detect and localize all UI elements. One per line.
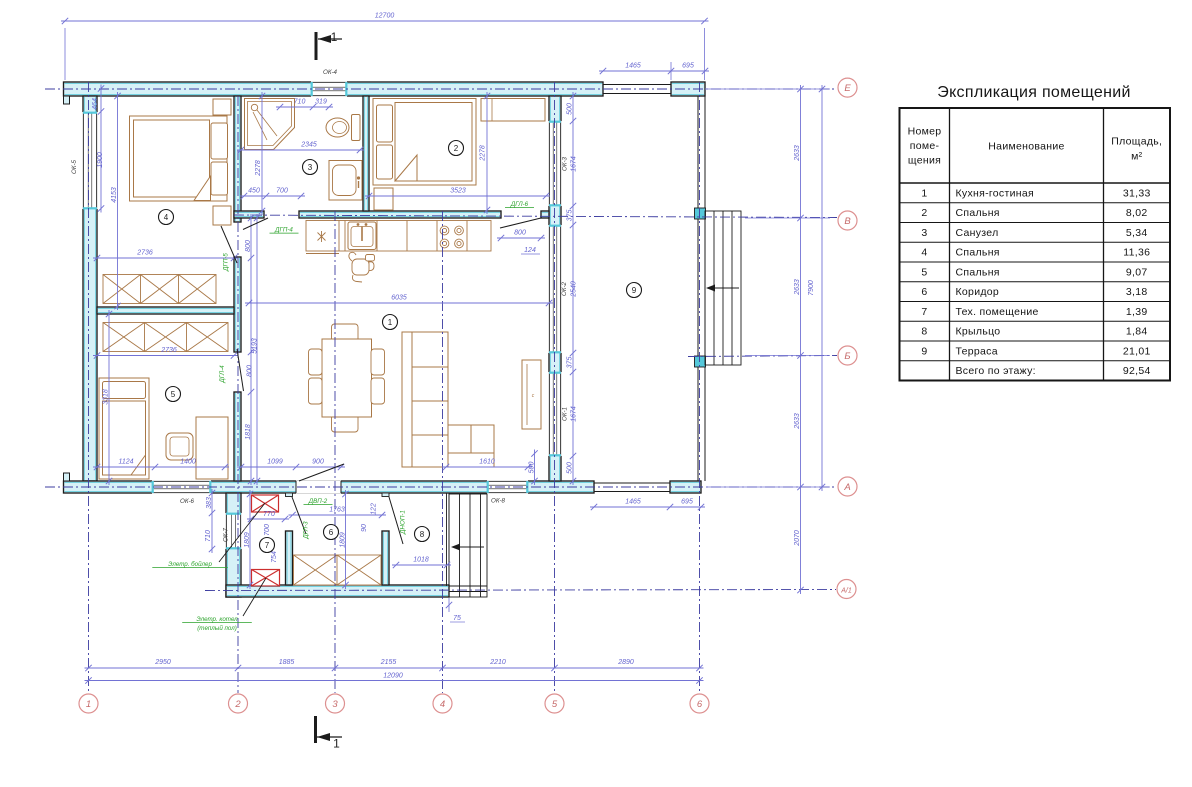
svg-text:Номер: Номер: [908, 126, 942, 138]
svg-text:2210: 2210: [489, 659, 506, 666]
svg-text:ДГП-4: ДГП-4: [274, 227, 293, 234]
svg-text:1900: 1900: [97, 152, 104, 168]
svg-text:8: 8: [921, 326, 927, 338]
svg-text:А: А: [843, 482, 850, 493]
svg-text:700: 700: [264, 524, 271, 536]
svg-text:ОК-7: ОК-7: [223, 527, 230, 542]
svg-text:5193: 5193: [252, 338, 259, 354]
svg-text:464: 464: [92, 98, 99, 110]
svg-text:1: 1: [331, 30, 338, 44]
svg-text:1763: 1763: [329, 507, 345, 514]
svg-text:1: 1: [921, 187, 927, 199]
svg-text:4: 4: [440, 699, 445, 710]
svg-text:2633: 2633: [794, 279, 801, 296]
svg-text:ОК-6: ОК-6: [180, 498, 195, 505]
svg-text:Санузел: Санузел: [956, 227, 999, 239]
svg-text:ОК-2: ОК-2: [561, 281, 568, 296]
svg-text:12700: 12700: [375, 13, 395, 20]
svg-text:9: 9: [632, 286, 637, 295]
svg-text:2736: 2736: [160, 347, 177, 354]
svg-text:5: 5: [171, 390, 176, 399]
svg-text:2633: 2633: [794, 145, 801, 162]
svg-text:1: 1: [86, 699, 91, 710]
svg-text:Элетр. котел: Элетр. котел: [196, 616, 238, 623]
svg-text:12090: 12090: [383, 673, 403, 680]
svg-text:21,01: 21,01: [1123, 345, 1151, 357]
svg-text:В: В: [844, 216, 851, 227]
svg-text:Всего по этажу:: Всего по этажу:: [956, 365, 1036, 377]
svg-text:800: 800: [514, 230, 526, 237]
svg-text:1465: 1465: [625, 63, 641, 70]
svg-text:1,84: 1,84: [1126, 326, 1148, 338]
svg-text:ДВП-2: ДВП-2: [308, 498, 328, 505]
svg-text:754: 754: [271, 551, 278, 563]
svg-text:2155: 2155: [380, 659, 397, 666]
svg-text:6: 6: [921, 286, 927, 298]
svg-text:Крыльцо: Крыльцо: [956, 326, 1001, 338]
svg-text:1674: 1674: [571, 156, 578, 172]
svg-text:800: 800: [245, 240, 252, 252]
svg-text:2950: 2950: [154, 659, 171, 666]
svg-text:щения: щения: [908, 155, 941, 167]
svg-text:710: 710: [205, 530, 212, 542]
svg-text:1809: 1809: [340, 532, 347, 548]
svg-text:Коридор: Коридор: [956, 286, 1000, 298]
svg-text:ОК-4: ОК-4: [323, 69, 338, 76]
svg-text:ДГЛ-4: ДГЛ-4: [219, 365, 226, 384]
svg-text:1099: 1099: [267, 459, 283, 466]
svg-text:2: 2: [234, 699, 241, 710]
svg-text:75: 75: [453, 615, 461, 622]
svg-text:2540: 2540: [571, 281, 578, 298]
svg-text:ОК-8: ОК-8: [491, 498, 506, 505]
svg-text:1674: 1674: [571, 406, 578, 422]
svg-text:5: 5: [921, 266, 927, 278]
svg-text:2633: 2633: [794, 413, 801, 430]
svg-text:124: 124: [524, 247, 536, 254]
svg-text:375: 375: [567, 210, 574, 222]
svg-text:2070: 2070: [794, 530, 801, 547]
svg-text:5: 5: [552, 699, 558, 710]
svg-text:7: 7: [921, 306, 927, 318]
svg-text:3523: 3523: [450, 188, 466, 195]
svg-text:710: 710: [294, 99, 306, 106]
svg-text:9: 9: [921, 345, 927, 357]
svg-text:11,36: 11,36: [1123, 247, 1150, 259]
svg-text:695: 695: [681, 499, 693, 506]
svg-text:1818: 1818: [245, 424, 252, 440]
svg-text:500: 500: [567, 103, 574, 115]
svg-text:383: 383: [206, 497, 213, 509]
svg-text:2: 2: [454, 144, 459, 153]
svg-text:6035: 6035: [391, 295, 407, 302]
svg-text:2890: 2890: [617, 659, 634, 666]
svg-text:Элетр. бойлер: Элетр. бойлер: [168, 561, 212, 568]
svg-text:ОК-3: ОК-3: [562, 156, 569, 171]
svg-text:6: 6: [329, 528, 334, 537]
svg-text:А/1: А/1: [840, 587, 852, 594]
svg-text:Спальня: Спальня: [956, 207, 1000, 219]
svg-text:Спальня: Спальня: [956, 247, 1000, 259]
svg-text:695: 695: [682, 63, 694, 70]
svg-text:1465: 1465: [625, 499, 641, 506]
svg-text:ДНОП-1: ДНОП-1: [400, 510, 407, 535]
svg-text:Экспликация помещений: Экспликация помещений: [937, 84, 1130, 101]
svg-text:Площадь,: Площадь,: [1111, 136, 1162, 148]
svg-text:4: 4: [921, 247, 927, 259]
svg-text:500: 500: [567, 462, 574, 474]
svg-text:90: 90: [361, 524, 368, 532]
svg-text:3: 3: [921, 227, 927, 239]
svg-text:Б: Б: [844, 351, 850, 362]
svg-text:2736: 2736: [136, 250, 153, 257]
svg-text:1018: 1018: [413, 557, 429, 564]
svg-text:700: 700: [276, 188, 288, 195]
svg-text:8: 8: [420, 530, 425, 539]
svg-text:(теплый пол): (теплый пол): [197, 625, 237, 632]
svg-text:ОК-5: ОК-5: [71, 159, 78, 174]
svg-text:2278: 2278: [255, 160, 262, 177]
svg-text:7: 7: [265, 541, 270, 550]
svg-text:5,34: 5,34: [1126, 227, 1148, 239]
svg-text:ДГЛ-3: ДГЛ-3: [303, 521, 310, 540]
svg-text:450: 450: [248, 188, 260, 195]
svg-text:500: 500: [529, 462, 536, 474]
svg-text:1809: 1809: [244, 532, 251, 548]
svg-text:Наименование: Наименование: [988, 141, 1064, 153]
svg-text:ОК-1: ОК-1: [562, 407, 569, 421]
svg-text:770: 770: [263, 511, 275, 518]
svg-text:1400: 1400: [180, 459, 196, 466]
svg-text:1885: 1885: [279, 659, 295, 666]
svg-text:Тех. помещение: Тех. помещение: [956, 306, 1039, 318]
svg-text:375: 375: [567, 357, 574, 369]
svg-text:поме-: поме-: [910, 140, 940, 152]
svg-text:2: 2: [921, 207, 927, 219]
svg-text:ДГП-5: ДГП-5: [223, 253, 230, 272]
svg-text:м²: м²: [1131, 151, 1143, 163]
svg-text:9,07: 9,07: [1126, 266, 1148, 278]
svg-text:Е: Е: [844, 83, 851, 94]
svg-text:Кухня-гостиная: Кухня-гостиная: [956, 187, 1034, 199]
svg-text:1610: 1610: [479, 459, 495, 466]
svg-text:2278: 2278: [480, 145, 487, 162]
svg-text:1124: 1124: [118, 459, 133, 466]
svg-text:4: 4: [164, 213, 169, 222]
svg-text:4153: 4153: [111, 187, 118, 203]
svg-text:1: 1: [388, 318, 393, 327]
svg-text:31,33: 31,33: [1123, 187, 1151, 199]
svg-text:6: 6: [697, 699, 703, 710]
svg-text:1,39: 1,39: [1126, 306, 1148, 318]
svg-text:8,02: 8,02: [1126, 207, 1148, 219]
svg-text:319: 319: [315, 99, 327, 106]
svg-text:900: 900: [312, 459, 324, 466]
svg-text:3: 3: [308, 163, 313, 172]
svg-text:ДГЛ-6: ДГЛ-6: [510, 201, 529, 208]
svg-text:3318: 3318: [103, 389, 110, 405]
svg-text:1: 1: [333, 737, 340, 751]
svg-text:Терраса: Терраса: [956, 345, 998, 357]
svg-text:122: 122: [371, 503, 378, 515]
svg-text:7900: 7900: [808, 280, 815, 296]
svg-text:3: 3: [332, 699, 338, 710]
svg-text:3,18: 3,18: [1126, 286, 1148, 298]
svg-text:800: 800: [247, 365, 254, 377]
svg-text:Спальня: Спальня: [956, 266, 1000, 278]
svg-text:92,54: 92,54: [1123, 365, 1151, 377]
svg-text:2345: 2345: [300, 142, 317, 149]
